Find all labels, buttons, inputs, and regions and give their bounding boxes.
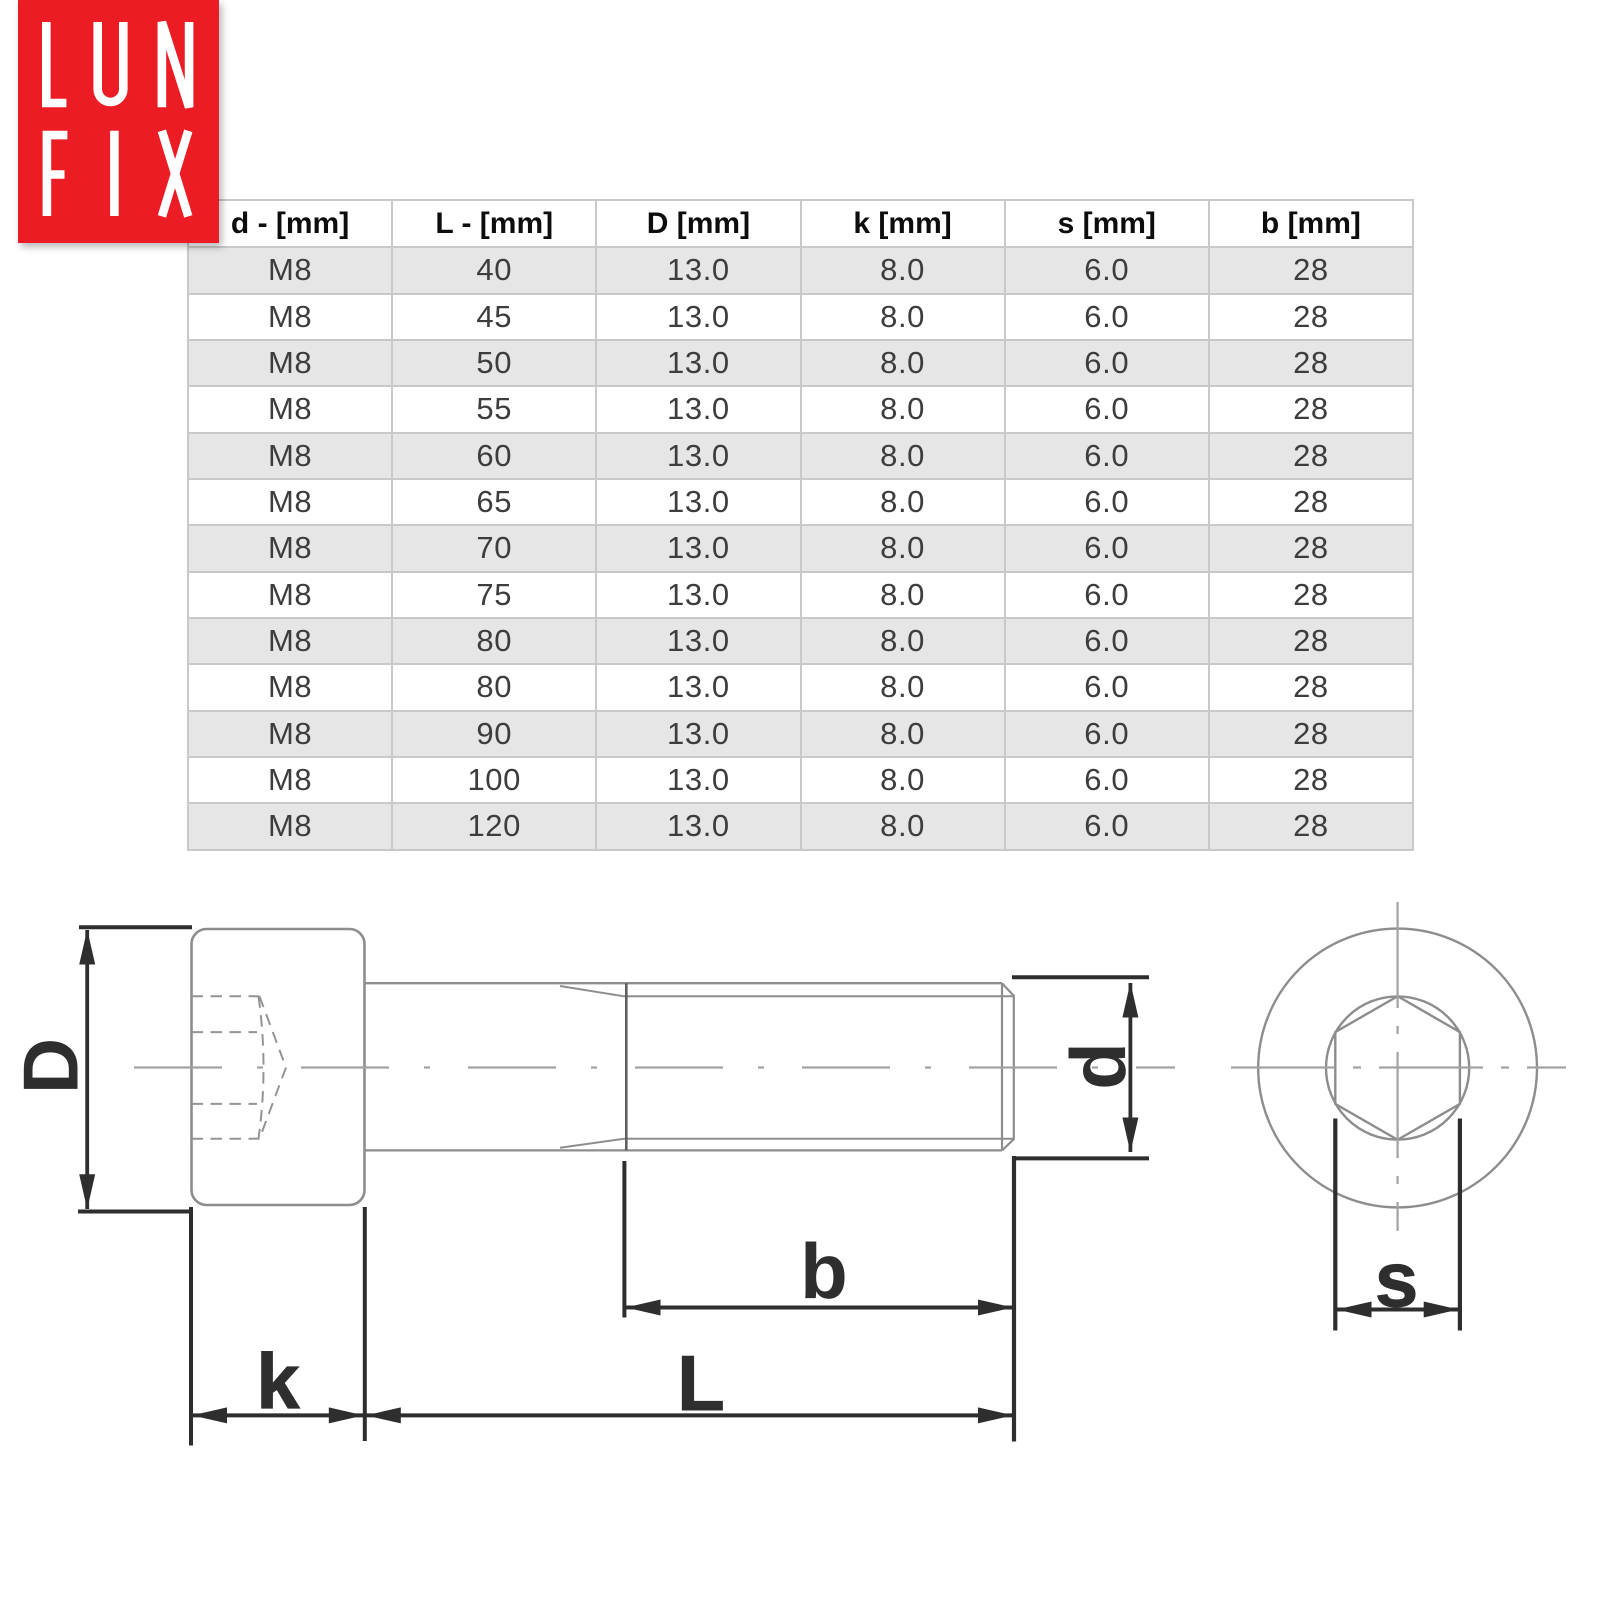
svg-text:s: s <box>1375 1235 1418 1323</box>
svg-text:D: D <box>7 1038 95 1094</box>
svg-text:d: d <box>1054 1042 1142 1090</box>
svg-text:b: b <box>800 1227 848 1315</box>
svg-text:k: k <box>256 1337 300 1425</box>
svg-text:L: L <box>677 1339 725 1427</box>
